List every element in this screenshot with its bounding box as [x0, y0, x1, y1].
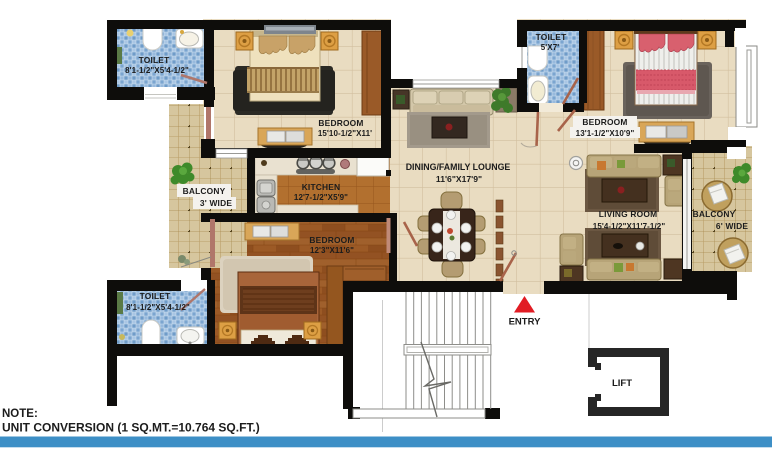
- svg-text:BEDROOM: BEDROOM: [309, 235, 354, 245]
- svg-text:BALCONY: BALCONY: [183, 186, 226, 196]
- svg-text:8'1-1/2"X5'4-1/2": 8'1-1/2"X5'4-1/2": [126, 303, 190, 312]
- svg-text:15'10-1/2"X11': 15'10-1/2"X11': [318, 129, 372, 138]
- svg-text:BEDROOM: BEDROOM: [318, 118, 363, 128]
- svg-text:15'4-1/2"X11'7-1/2": 15'4-1/2"X11'7-1/2": [593, 222, 666, 231]
- svg-text:DINING/FAMILY LOUNGE: DINING/FAMILY LOUNGE: [406, 162, 511, 172]
- svg-text:ENTRY: ENTRY: [509, 317, 542, 328]
- svg-text:5'X7': 5'X7': [541, 43, 560, 52]
- svg-text:LIVING ROOM: LIVING ROOM: [599, 209, 658, 219]
- svg-text:13'1-1/2"X10'9": 13'1-1/2"X10'9": [576, 129, 635, 138]
- svg-text:TOILET: TOILET: [140, 291, 172, 301]
- svg-text:12'3"X11'6": 12'3"X11'6": [310, 246, 354, 255]
- svg-text:NOTE:: NOTE:: [2, 408, 38, 420]
- svg-text:6' WIDE: 6' WIDE: [716, 221, 748, 231]
- svg-text:BALCONY: BALCONY: [693, 209, 736, 219]
- svg-text:11'6"X17'9": 11'6"X17'9": [436, 174, 482, 184]
- svg-text:TOILET: TOILET: [139, 55, 171, 65]
- svg-text:BEDROOM: BEDROOM: [582, 117, 627, 127]
- svg-text:12'7-1/2"X5'9": 12'7-1/2"X5'9": [294, 193, 348, 202]
- svg-text:TOILET: TOILET: [536, 32, 568, 42]
- svg-text:UNIT CONVERSION (1 SQ.MT.=10.7: UNIT CONVERSION (1 SQ.MT.=10.764 SQ.FT.): [2, 421, 260, 435]
- svg-text:LIFT: LIFT: [612, 378, 632, 389]
- svg-text:8'1-1/2"X5'4-1/2": 8'1-1/2"X5'4-1/2": [125, 66, 189, 75]
- svg-text:3' WIDE: 3' WIDE: [200, 198, 232, 208]
- svg-text:KITCHEN: KITCHEN: [302, 182, 341, 192]
